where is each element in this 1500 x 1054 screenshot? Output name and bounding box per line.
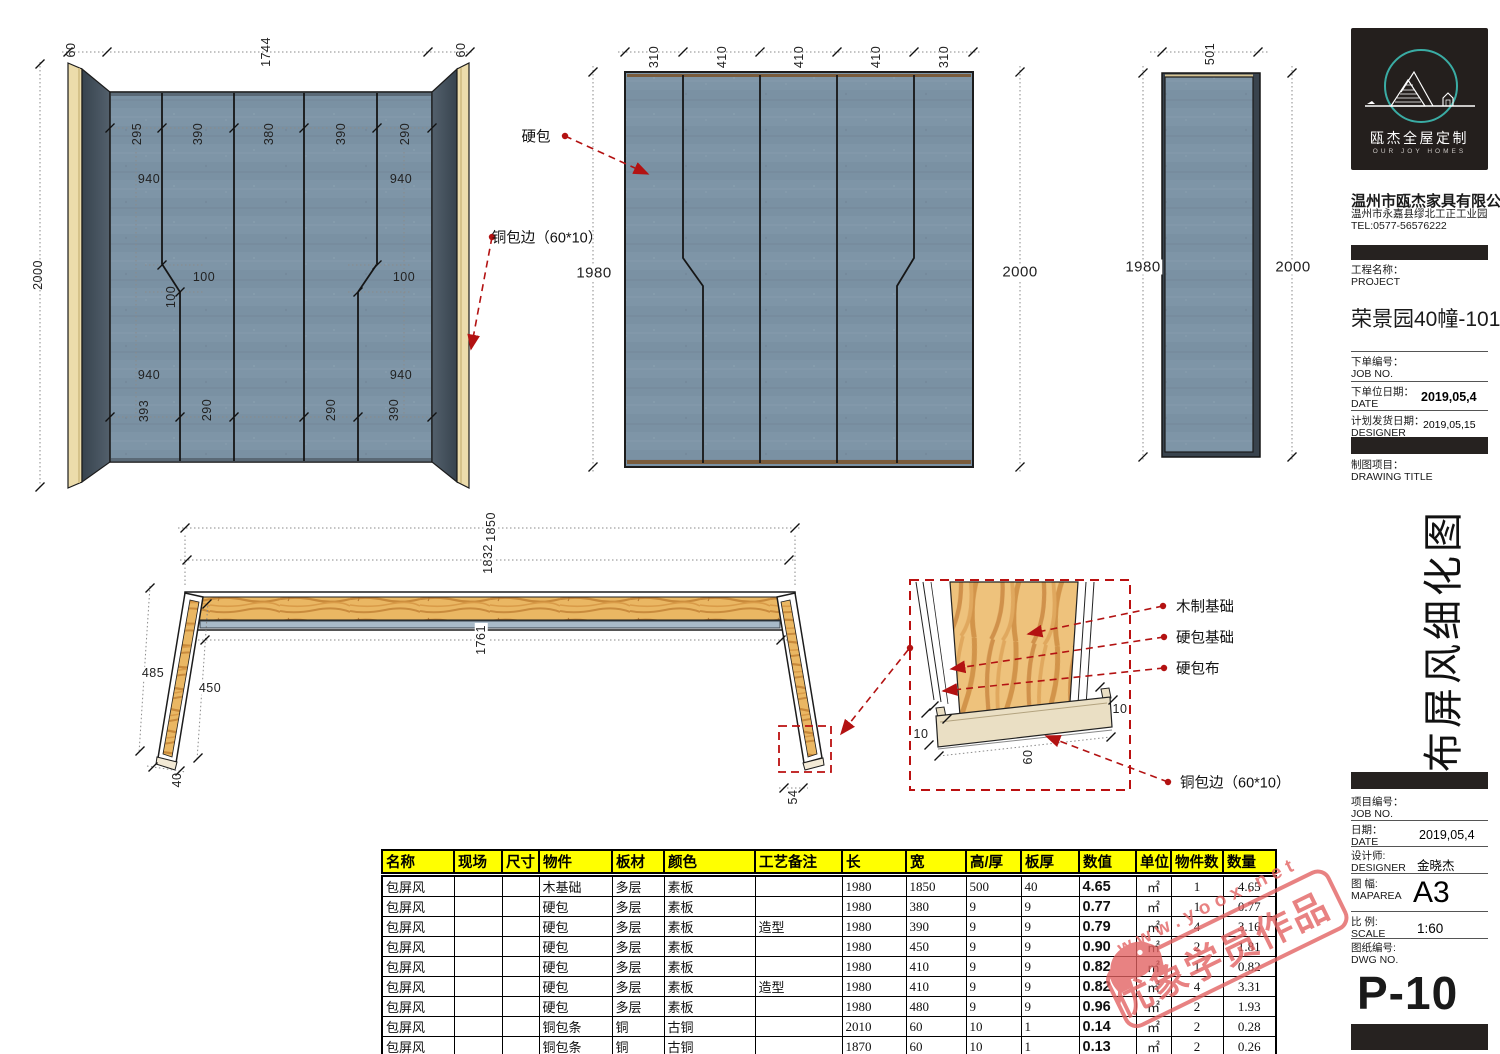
annotation-copper-edge-detail: 铜包边（60*10） <box>1180 772 1290 793</box>
bom-cell <box>502 977 539 997</box>
bom-cell: ㎡ <box>1136 997 1171 1017</box>
project-label-cn: 工程名称： <box>1351 265 1488 276</box>
dim-label: 940 <box>390 173 412 186</box>
project-label-en: PROJECT <box>1351 277 1488 288</box>
company-logo: 瓯杰全屋定制 OUR JOY HOMES <box>1351 28 1488 170</box>
bom-cell: 造型 <box>755 917 842 937</box>
view-plan-ticks <box>136 524 808 793</box>
dim-label: 393 <box>138 400 151 422</box>
order-date-value: 2019,05,4 <box>1421 390 1477 404</box>
bom-cell: 古铜 <box>664 1017 755 1037</box>
dim-label: 940 <box>138 173 160 186</box>
bom-cell: 硬包 <box>539 957 612 977</box>
bom-cell: 9 <box>1021 977 1079 997</box>
bom-cell: 450 <box>906 937 966 957</box>
bom-cell <box>755 937 842 957</box>
bom-cell: 3.16 <box>1223 917 1276 937</box>
bom-cell <box>454 937 502 957</box>
bom-cell: 造型 <box>755 977 842 997</box>
bom-cell: 390 <box>906 917 966 937</box>
dim-label: 60 <box>455 43 468 58</box>
bom-row: 包屏风木基础多层素板19801850500404.65㎡14.65 <box>382 876 1276 897</box>
column-header: 板厚 <box>1021 850 1079 873</box>
bom-cell: 包屏风 <box>382 977 454 997</box>
bom-cell: 1870 <box>842 1037 906 1054</box>
order-no-label-cn: 下单编号： <box>1351 357 1488 368</box>
dim-label: 290 <box>201 399 214 421</box>
bom-cell: 9 <box>1021 937 1079 957</box>
column-header: 数量 <box>1223 850 1276 873</box>
bom-cell: 素板 <box>664 937 755 957</box>
bom-cell: 硬包 <box>539 917 612 937</box>
bom-cell: 2 <box>1171 1017 1223 1037</box>
bom-cell: 1980 <box>842 897 906 917</box>
bom-cell: 60 <box>906 1017 966 1037</box>
dim-label: 2000 <box>32 260 45 290</box>
bom-row: 包屏风铜包条铜古铜2010601010.14㎡20.28 <box>382 1017 1276 1037</box>
bom-cell: 铜 <box>612 1037 664 1054</box>
bom-cell: 古铜 <box>664 1037 755 1054</box>
bom-cell: 多层 <box>612 957 664 977</box>
bom-cell: 多层 <box>612 917 664 937</box>
bom-cell: 500 <box>966 876 1021 897</box>
dim-label: 100 <box>165 286 178 308</box>
bom-cell: 1980 <box>842 876 906 897</box>
dim-label: 485 <box>140 667 166 680</box>
view-plan-dim-lines <box>139 528 808 788</box>
bom-cell: 多层 <box>612 937 664 957</box>
bom-cell: 1.93 <box>1223 997 1276 1017</box>
bom-cell <box>502 876 539 897</box>
bom-cell: 素板 <box>664 917 755 937</box>
dim-label: 390 <box>388 399 401 421</box>
column-header: 工艺备注 <box>755 850 842 873</box>
bom-cell: ㎡ <box>1136 977 1171 997</box>
bom-cell: 0.13 <box>1079 1037 1136 1054</box>
bom-cell: 1980 <box>842 997 906 1017</box>
bom-cell: 4 <box>1171 917 1223 937</box>
bom-cell: 包屏风 <box>382 997 454 1017</box>
divider-line <box>1351 911 1488 912</box>
bom-cell <box>502 897 539 917</box>
bom-cell: ㎡ <box>1136 1017 1171 1037</box>
bom-cell <box>454 997 502 1017</box>
detail-leader-line <box>841 650 908 734</box>
bom-cell <box>502 997 539 1017</box>
bom-cell: ㎡ <box>1136 937 1171 957</box>
bom-cell: 380 <box>906 897 966 917</box>
bom-cell: 素板 <box>664 876 755 897</box>
dim-label: 2000 <box>1000 265 1039 280</box>
bom-cell: 2010 <box>842 1017 906 1037</box>
dim-label: 380 <box>263 123 276 145</box>
column-header: 现场 <box>454 850 502 873</box>
bom-cell: ㎡ <box>1136 1037 1171 1054</box>
company-address: 温州市永嘉县缪北工正工业园 <box>1351 209 1488 220</box>
bom-cell <box>454 876 502 897</box>
bom-cell <box>502 957 539 977</box>
bom-cell <box>755 1037 842 1054</box>
column-header: 尺寸 <box>502 850 539 873</box>
view-side-panel <box>1162 73 1260 457</box>
bom-cell <box>454 917 502 937</box>
drawing-label-en: DRAWING TITLE <box>1351 472 1488 483</box>
bom-cell: 0.82 <box>1223 957 1276 977</box>
divider-bar <box>1351 245 1488 260</box>
column-header: 板材 <box>612 850 664 873</box>
divider-bar <box>1351 1024 1488 1050</box>
bom-cell: 9 <box>966 897 1021 917</box>
job-no-label-cn: 项目编号： <box>1351 797 1488 808</box>
dwg-label-cn: 图纸编号: <box>1351 943 1488 954</box>
annotation-copper-edge: 铜包边（60*10） <box>492 227 602 248</box>
bom-cell: ㎡ <box>1136 876 1171 897</box>
bom-cell: ㎡ <box>1136 917 1171 937</box>
bom-row: 包屏风硬包多层素板1980380990.77㎡10.77 <box>382 897 1276 917</box>
bom-cell: 硬包 <box>539 977 612 997</box>
bom-cell: 素板 <box>664 997 755 1017</box>
bom-cell: 0.77 <box>1223 897 1276 917</box>
bom-cell: 硬包 <box>539 937 612 957</box>
bom-cell: 1 <box>1171 897 1223 917</box>
bom-cell: 包屏风 <box>382 1017 454 1037</box>
divider-line <box>1351 820 1488 821</box>
bom-cell: 铜 <box>612 1017 664 1037</box>
bom-cell: 9 <box>1021 997 1079 1017</box>
bom-cell: 3.31 <box>1223 977 1276 997</box>
column-header: 物件 <box>539 850 612 873</box>
bom-cell: 1850 <box>906 876 966 897</box>
bom-cell: 480 <box>906 997 966 1017</box>
bom-cell: 包屏风 <box>382 917 454 937</box>
bom-cell <box>755 897 842 917</box>
bom-cell: 木基础 <box>539 876 612 897</box>
bom-cell: 2 <box>1171 997 1223 1017</box>
bom-cell <box>502 1017 539 1037</box>
annotation-hard-pack-base: 硬包基础 <box>1176 627 1234 648</box>
dim-label: 40 <box>171 773 184 788</box>
view-plan <box>156 592 824 770</box>
divider-bar <box>1351 772 1488 789</box>
dim-label: 1744 <box>260 37 273 67</box>
column-header: 数值 <box>1079 850 1136 873</box>
column-header: 名称 <box>382 850 454 873</box>
bom-cell: 9 <box>1021 957 1079 977</box>
bom-cell: 包屏风 <box>382 897 454 917</box>
divider-line <box>1351 873 1488 874</box>
dim-label: 310 <box>938 46 951 68</box>
dim-label: 10 <box>914 728 929 741</box>
bom-cell: 多层 <box>612 977 664 997</box>
dim-label: 390 <box>335 123 348 145</box>
column-header: 物件数 <box>1171 850 1223 873</box>
bom-cell: 铜包条 <box>539 1017 612 1037</box>
bom-cell: 1 <box>1171 957 1223 977</box>
column-header: 长 <box>842 850 906 873</box>
dim-label: 1980 <box>574 266 613 281</box>
divider-line <box>1351 381 1488 382</box>
column-header: 宽 <box>906 850 966 873</box>
dim-label: 290 <box>325 399 338 421</box>
bom-cell: 4 <box>1171 977 1223 997</box>
bom-cell: 4.65 <box>1079 876 1136 897</box>
column-header: 单位 <box>1136 850 1171 873</box>
bom-cell: 0.82 <box>1079 977 1136 997</box>
bom-cell: 硬包 <box>539 997 612 1017</box>
bom-cell: 40 <box>1021 876 1079 897</box>
bom-cell <box>502 917 539 937</box>
bom-cell: 包屏风 <box>382 1037 454 1054</box>
bom-cell: 1980 <box>842 977 906 997</box>
bom-cell <box>755 957 842 977</box>
bom-cell: 0.28 <box>1223 1017 1276 1037</box>
bom-cell: 9 <box>1021 917 1079 937</box>
annotation-wood-base: 木制基础 <box>1176 596 1234 617</box>
bom-header-row: 名称现场尺寸物件板材颜色工艺备注长宽高/厚板厚数值单位物件数数量 <box>382 850 1276 873</box>
bom-cell: 铜包条 <box>539 1037 612 1054</box>
drawing-title-vertical: 布屏风细化图 <box>1411 508 1469 772</box>
logo-subtitle: OUR JOY HOMES <box>1351 148 1488 155</box>
bom-cell: 60 <box>906 1037 966 1054</box>
designer-value: 金晓杰 <box>1417 855 1455 874</box>
bom-cell: 0.77 <box>1079 897 1136 917</box>
bom-cell: 9 <box>966 997 1021 1017</box>
dim-label: 501 <box>1204 43 1217 65</box>
bom-cell <box>454 1037 502 1054</box>
dim-label: 295 <box>131 123 144 145</box>
divider-line <box>1351 938 1488 939</box>
bom-cell: 410 <box>906 957 966 977</box>
dim-label: 310 <box>648 46 661 68</box>
bom-cell: 素板 <box>664 977 755 997</box>
bom-cell: 1980 <box>842 917 906 937</box>
bom-cell: 多层 <box>612 876 664 897</box>
dim-label: 410 <box>870 46 883 68</box>
bom-cell: 0.79 <box>1079 917 1136 937</box>
dim-label: 290 <box>399 123 412 145</box>
divider-line <box>1351 410 1488 411</box>
bom-cell: 1 <box>1021 1017 1079 1037</box>
dim-label: 390 <box>192 123 205 145</box>
bom-cell <box>454 897 502 917</box>
bom-cell: 素板 <box>664 957 755 977</box>
dim-label: 60 <box>1022 750 1035 765</box>
annotation-hard-pack-fabric: 硬包布 <box>1176 658 1220 679</box>
bom-cell: 包屏风 <box>382 957 454 977</box>
bom-table-body: 包屏风木基础多层素板19801850500404.65㎡14.65包屏风硬包多层… <box>381 875 1277 1054</box>
dim-label: 2000 <box>1273 260 1312 275</box>
column-header: 颜色 <box>664 850 755 873</box>
bom-cell: ㎡ <box>1136 957 1171 977</box>
bom-cell: 9 <box>966 917 1021 937</box>
divider-line <box>1351 351 1488 352</box>
bom-cell: 2 <box>1171 937 1223 957</box>
bom-cell <box>755 876 842 897</box>
bom-cell: 4.65 <box>1223 876 1276 897</box>
bom-cell: 多层 <box>612 897 664 917</box>
bom-cell <box>454 977 502 997</box>
dim-label: 54 <box>787 790 800 805</box>
job-no-label-en: JOB NO. <box>1351 809 1488 820</box>
bom-row: 包屏风硬包多层素板1980450990.90㎡21.81 <box>382 937 1276 957</box>
dwg-label-en: DWG NO. <box>1351 955 1488 966</box>
dim-label: 940 <box>390 369 412 382</box>
bom-cell: 0.96 <box>1079 997 1136 1017</box>
dim-label: 1832 <box>482 542 495 576</box>
dim-label: 10 <box>1113 703 1128 716</box>
dim-label: 410 <box>793 46 806 68</box>
map-value: A3 <box>1413 876 1450 910</box>
dim-label: 1980 <box>1123 260 1162 275</box>
bom-cell: 1980 <box>842 957 906 977</box>
bom-cell <box>454 957 502 977</box>
order-no-label-en: JOB NO. <box>1351 369 1488 380</box>
bom-cell: 10 <box>966 1037 1021 1054</box>
bom-row: 包屏风硬包多层素板1980480990.96㎡21.93 <box>382 997 1276 1017</box>
bom-cell: 硬包 <box>539 897 612 917</box>
bom-cell: 0.26 <box>1223 1037 1276 1054</box>
divider-bar <box>1351 437 1488 454</box>
bom-cell: 素板 <box>664 897 755 917</box>
bom-row: 包屏风铜包条铜古铜1870601010.13㎡20.26 <box>382 1037 1276 1054</box>
bom-cell: 1 <box>1021 1037 1079 1054</box>
logo-title: 瓯杰全屋定制 <box>1351 128 1488 148</box>
dim-label: 100 <box>193 271 215 284</box>
bom-row: 包屏风硬包多层素板造型1980390990.79㎡43.16 <box>382 917 1276 937</box>
bom-row: 包屏风硬包多层素板1980410990.82㎡10.82 <box>382 957 1276 977</box>
dim-label: 1850 <box>485 510 498 544</box>
bom-cell: 1.81 <box>1223 937 1276 957</box>
bom-cell: ㎡ <box>1136 897 1171 917</box>
dim-label: 60 <box>65 43 78 58</box>
bom-cell <box>755 1017 842 1037</box>
bom-cell: 0.82 <box>1079 957 1136 977</box>
annotation-hard-pack: 硬包 <box>522 126 551 147</box>
bom-cell: 9 <box>966 937 1021 957</box>
bom-cell: 0.14 <box>1079 1017 1136 1037</box>
bom-cell: 410 <box>906 977 966 997</box>
dim-label: 410 <box>716 46 729 68</box>
view-elevation-panel <box>625 72 973 467</box>
dim-label: 1761 <box>475 623 488 657</box>
dim-label: 100 <box>393 271 415 284</box>
date-value: 2019,05,4 <box>1419 828 1475 842</box>
bom-cell: 9 <box>966 977 1021 997</box>
drawing-number: P-10 <box>1357 966 1494 1020</box>
bom-table-header: 名称现场尺寸物件板材颜色工艺备注长宽高/厚板厚数值单位物件数数量 <box>381 849 1277 874</box>
bom-cell: 1 <box>1171 876 1223 897</box>
drawing-label-cn: 制图项目： <box>1351 460 1488 471</box>
view-detail <box>907 580 1130 790</box>
dim-label: 940 <box>138 369 160 382</box>
bom-cell: 9 <box>1021 897 1079 917</box>
bom-cell: 10 <box>966 1017 1021 1037</box>
bom-cell <box>502 1037 539 1054</box>
company-tel: TEL:0577-56576222 <box>1351 221 1488 232</box>
bom-cell: 1980 <box>842 937 906 957</box>
bom-cell: 2 <box>1171 1037 1223 1054</box>
bom-cell: 包屏风 <box>382 937 454 957</box>
bom-row: 包屏风硬包多层素板造型1980410990.82㎡43.31 <box>382 977 1276 997</box>
bom-cell <box>454 1017 502 1037</box>
project-value: 荣景园40幢-101 <box>1351 303 1488 333</box>
column-header: 高/厚 <box>966 850 1021 873</box>
dim-label: 450 <box>197 682 223 695</box>
bom-cell: 包屏风 <box>382 876 454 897</box>
ship-date-value: 2019,05,15 <box>1423 419 1476 431</box>
bom-cell: 0.90 <box>1079 937 1136 957</box>
divider-line <box>1351 846 1488 847</box>
drawing-sheet: 60 1744 60 2000 295 390 380 390 290 940 … <box>0 0 1500 1054</box>
bom-cell <box>502 937 539 957</box>
bom-cell: 9 <box>966 957 1021 977</box>
bom-cell: 多层 <box>612 997 664 1017</box>
scale-value: 1:60 <box>1417 921 1443 936</box>
bom-cell <box>755 997 842 1017</box>
